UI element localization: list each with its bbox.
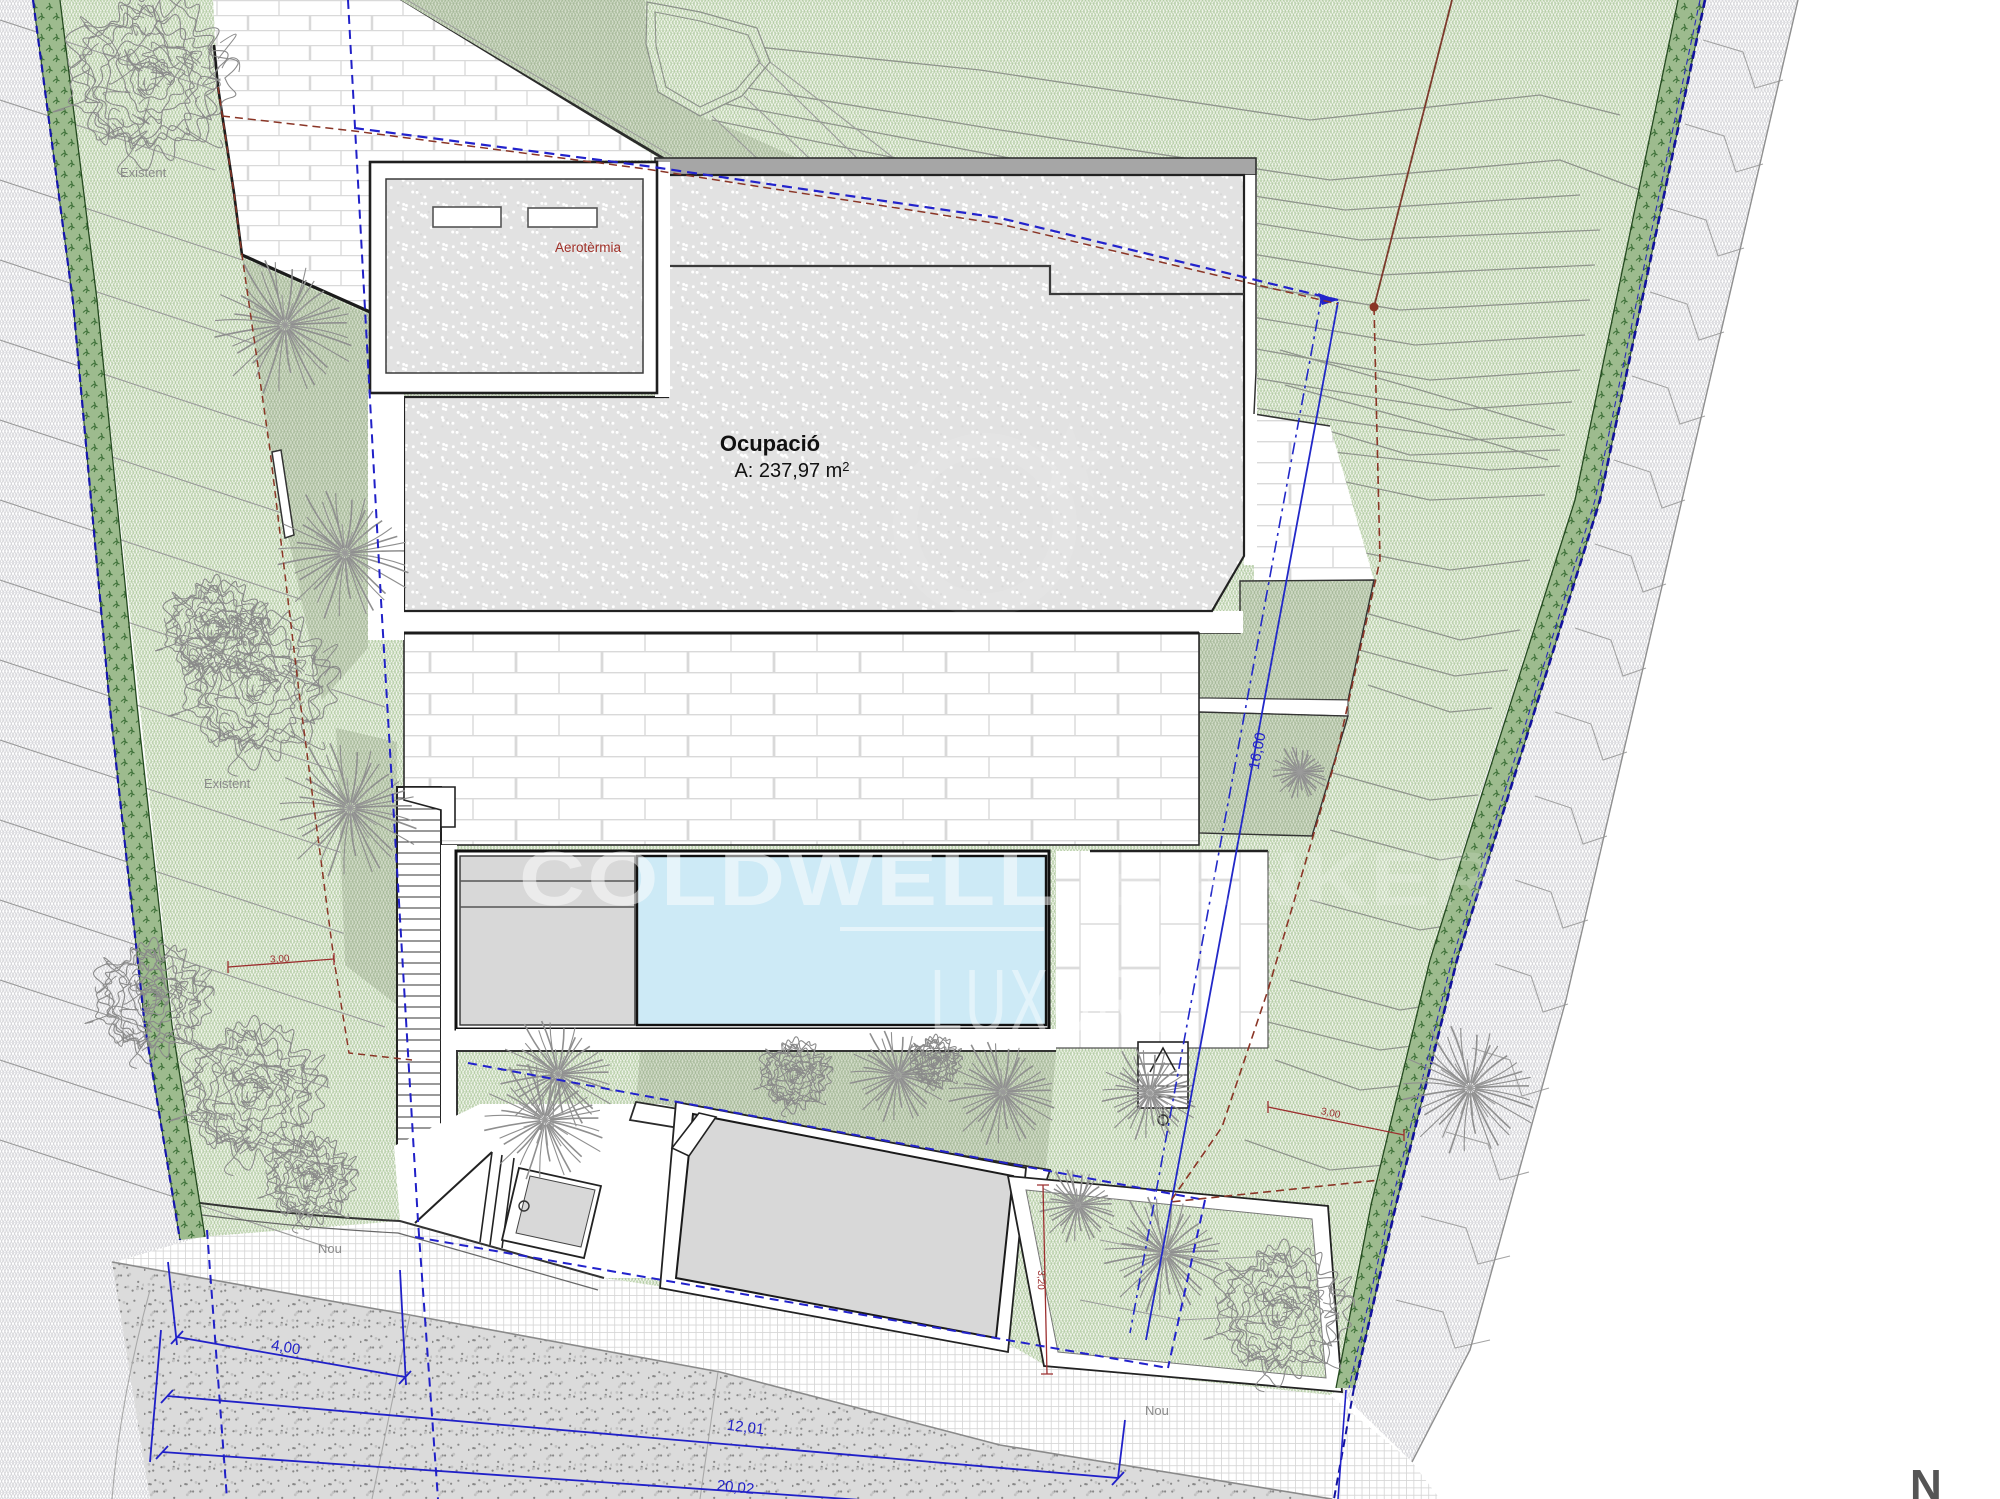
svg-text:A: 237,97 m2: A: 237,97 m2 (734, 459, 849, 482)
svg-text:BANKER: BANKER (1100, 837, 1500, 922)
svg-text:3,00: 3,00 (270, 953, 291, 965)
svg-text:N: N (1910, 1461, 1942, 1499)
svg-text:COLDWELL: COLDWELL (519, 837, 1056, 922)
svg-text:3,20: 3,20 (1035, 1270, 1046, 1290)
svg-text:Existent: Existent (204, 776, 251, 791)
svg-text:Existent: Existent (190, 1108, 237, 1123)
svg-text:Existent: Existent (120, 165, 167, 180)
svg-text:Aerotèrmia: Aerotèrmia (555, 240, 622, 255)
svg-text:Ocupació: Ocupació (720, 431, 820, 456)
svg-text:LUXURY: LUXURY (930, 952, 1180, 1052)
svg-text:Nou: Nou (1145, 1403, 1169, 1418)
svg-text:Nou: Nou (318, 1241, 342, 1256)
